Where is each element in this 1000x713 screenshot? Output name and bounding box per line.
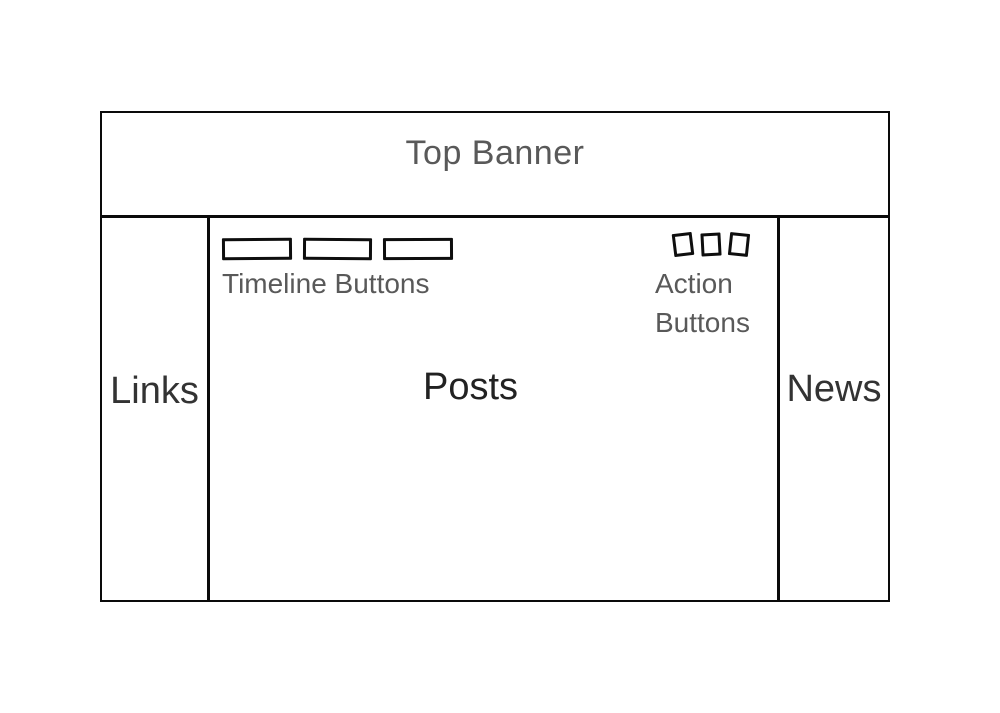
- action-button-placeholder: [672, 232, 695, 257]
- layout-body: Links Timeline Buttons Action Buttons: [102, 218, 888, 600]
- action-button-placeholder: [700, 232, 721, 256]
- timeline-button-placeholder: [383, 238, 453, 260]
- action-buttons-label-line1: Action: [655, 264, 750, 303]
- action-button-placeholder: [728, 232, 750, 257]
- action-buttons-group: [673, 233, 749, 256]
- posts-region: Timeline Buttons Action Buttons Posts: [210, 218, 777, 600]
- wireframe-canvas: Top Banner Links Timeline Buttons: [0, 0, 1000, 713]
- links-region: Links: [102, 218, 210, 600]
- layout-frame: Top Banner Links Timeline Buttons: [100, 111, 890, 602]
- top-banner-region: Top Banner: [102, 113, 888, 218]
- timeline-button-placeholder: [222, 238, 292, 261]
- news-label: News: [786, 368, 881, 411]
- action-buttons-label: Action Buttons: [655, 264, 750, 342]
- timeline-buttons-label: Timeline Buttons: [222, 268, 430, 300]
- top-banner-label: Top Banner: [406, 134, 585, 173]
- timeline-button-placeholder: [303, 238, 372, 260]
- action-buttons-label-line2: Buttons: [655, 303, 750, 342]
- news-region: News: [777, 218, 888, 600]
- timeline-buttons-group: [222, 238, 453, 260]
- links-label: Links: [110, 370, 199, 413]
- posts-label: Posts: [187, 366, 754, 409]
